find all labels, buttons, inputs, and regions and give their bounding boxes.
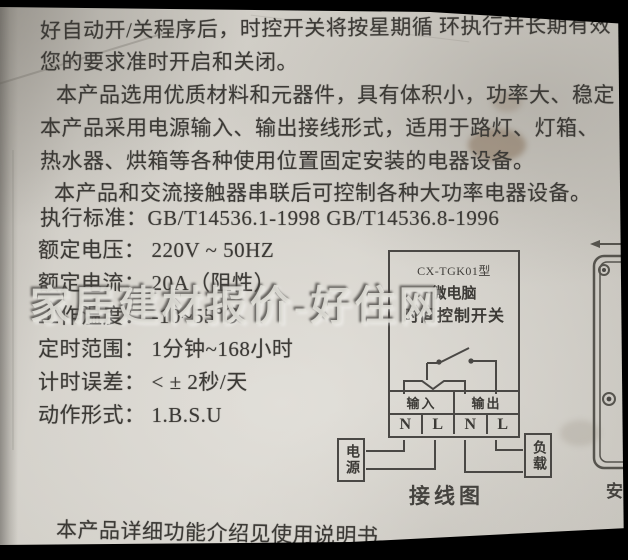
- photographed-instruction-sheet: 好自动开/关程序后，时控开关将按星期循 环执行并长期有效 您的要求准时开启和关闭…: [0, 0, 628, 560]
- terminal-block: 输入 输出 N L N L: [390, 390, 518, 436]
- installation-caption-partial: 安: [606, 477, 623, 502]
- timer-device-box: CX-TGK01型 微电脑 时间控制开关 输入 输出 N L N L: [388, 250, 520, 438]
- device-title-line1: 微电脑: [390, 282, 518, 303]
- input-label: 输入: [390, 392, 453, 413]
- terminal-n-in: N: [390, 415, 421, 434]
- terminal-header-row: 输入 输出: [390, 392, 518, 413]
- terminal-l-in: L: [421, 415, 454, 434]
- terminal-l-out: L: [486, 415, 519, 434]
- load-box: 负载: [524, 433, 552, 478]
- device-title-line2: 时间控制开关: [390, 302, 518, 326]
- power-source-box: 电源: [337, 438, 365, 482]
- output-label: 输出: [453, 392, 518, 413]
- wiring-diagram-caption: 接线图: [409, 480, 484, 510]
- terminal-n-out: N: [453, 415, 486, 434]
- device-model-label: CX-TGK01型: [390, 262, 518, 279]
- terminal-letter-row: N L N L: [390, 413, 518, 434]
